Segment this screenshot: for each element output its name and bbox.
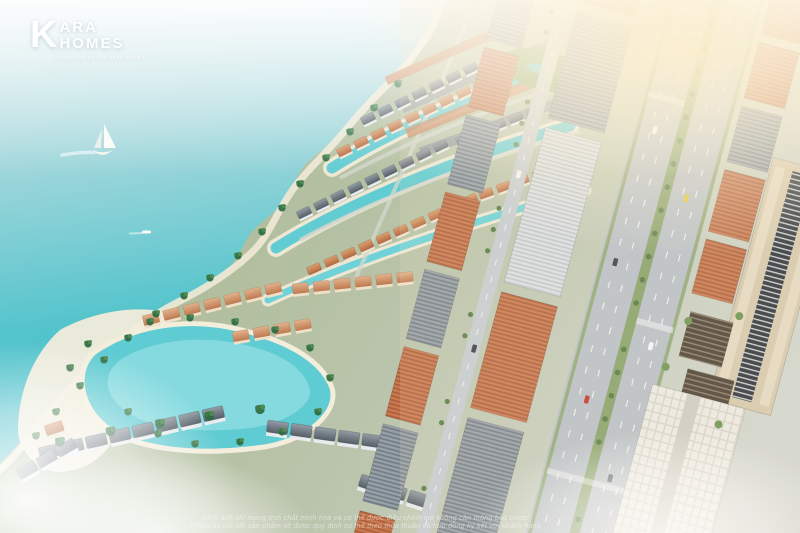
brand-tagline: Nâng tầm phong cách sống xyxy=(56,55,141,61)
aerial-render xyxy=(0,0,800,533)
disclaimer-line-2: Thông tin chi tiết sản phẩm sẽ được quy … xyxy=(0,523,730,531)
disclaimer: Hình ảnh chỉ mang tính chất minh họa và … xyxy=(0,515,730,531)
hero-image: K ARA HOMES Nâng tầm phong cách sống Hìn… xyxy=(0,0,800,533)
brand-logo: K ARA HOMES Nâng tầm phong cách sống xyxy=(30,20,141,61)
brand-name-bottom: HOMES xyxy=(59,36,124,52)
disclaimer-line-1: Hình ảnh chỉ mang tính chất minh họa và … xyxy=(0,515,730,523)
brand-monogram: K xyxy=(30,20,57,51)
brand-name-top: ARA xyxy=(59,20,124,36)
